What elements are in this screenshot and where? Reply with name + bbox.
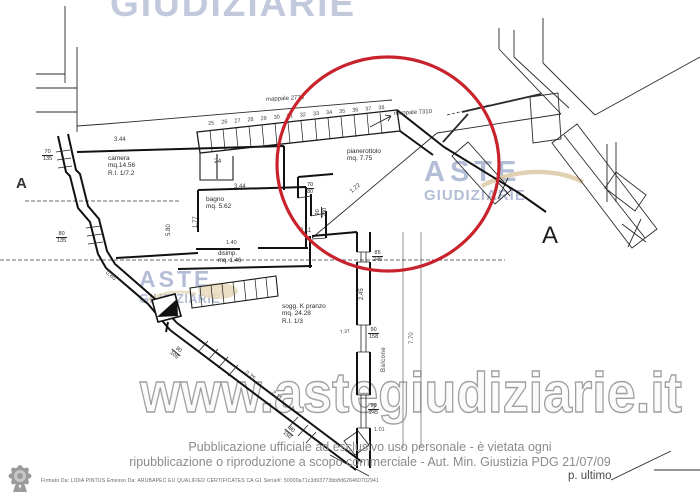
room-area: mq. 5.62 bbox=[206, 203, 231, 210]
dim-balcone-upper: 2.45 bbox=[359, 288, 365, 300]
room-name: bagno bbox=[206, 196, 231, 203]
legal-notice-line2: ripubblicazione o riproduzione a scopo c… bbox=[90, 455, 650, 470]
opening-height: 158 bbox=[368, 333, 379, 340]
room-label-pianerottolo: pianerottolo mq. 7.75 bbox=[347, 148, 381, 163]
opening-height: 245 bbox=[372, 256, 383, 263]
microtext-dashed-lines bbox=[0, 201, 505, 260]
dim-balcone-total: 7.70 bbox=[409, 332, 415, 344]
scan-stain bbox=[198, 283, 238, 299]
room-label-disimpegno: disimp. mq. 1.46 bbox=[218, 251, 241, 265]
legal-notice: Pubblicazione ufficiale ad esclusivo uso… bbox=[90, 440, 650, 470]
scanned-floorplan-page: GIUDIZIARIE ASTE GIUDIZIARIE ASTE GIUDIZ… bbox=[0, 0, 700, 495]
dim-balcone-lower: 1.01 bbox=[374, 427, 385, 433]
stair-start-number: 24 bbox=[214, 158, 221, 165]
dim-camera-width: 3.44 bbox=[114, 137, 126, 143]
seal-icon bbox=[9, 465, 32, 492]
dim-camera-height: 5.80 bbox=[166, 224, 172, 236]
opening-height: 245 bbox=[368, 409, 379, 416]
opening-height: 230 bbox=[321, 207, 328, 218]
room-area: mq. 1.46 bbox=[218, 258, 241, 265]
flue-symbol bbox=[152, 294, 181, 332]
room-label-camera: camera mq.14.56 R.I. 1/7.2 bbox=[108, 155, 135, 177]
room-label-bagno: bagno mq. 5.62 bbox=[206, 196, 231, 211]
signature-text: Firmato Da: LIDIA PINTUS Emesso Da: ARUB… bbox=[41, 478, 379, 484]
room-area: mq.14.56 bbox=[108, 162, 135, 169]
dim-bagno-height: 1.77 bbox=[193, 216, 199, 228]
window-size-80-135: 80 135 bbox=[56, 231, 67, 244]
room-area: mq. 7.75 bbox=[347, 155, 381, 162]
window-size-90-158: 90 158 bbox=[368, 327, 379, 340]
dim-bagno-width: 3.44 bbox=[234, 184, 246, 190]
window-size-90-245: 90 245 bbox=[368, 403, 379, 416]
window-size-85-245: 85 245 bbox=[372, 250, 383, 263]
window-size-70-80: 70 80 bbox=[306, 182, 314, 195]
page-label: p. ultimo bbox=[568, 470, 611, 482]
room-name: pianerottolo bbox=[347, 148, 381, 155]
legal-notice-line1: Pubblicazione ufficiale ad esclusivo uso… bbox=[90, 440, 650, 455]
room-name: sogg. K pranzo bbox=[282, 303, 326, 310]
section-letter-right: A bbox=[542, 222, 558, 250]
opening-height: 135 bbox=[56, 237, 67, 244]
room-name: disimp. bbox=[218, 251, 241, 258]
room-ratio: R.I. 1/7.2 bbox=[108, 170, 135, 177]
window-size-70-135: 70 135 bbox=[42, 149, 53, 162]
room-ratio: R.I. 1/3 bbox=[282, 318, 326, 325]
room-label-soggiorno: sogg. K pranzo mq. 24.28 R.I. 1/3 bbox=[282, 303, 326, 325]
opening-height: 135 bbox=[42, 155, 53, 162]
dim-soggiorno-width: 3.11 bbox=[300, 228, 311, 234]
mappale-arrow bbox=[447, 105, 489, 115]
room-area: mq. 24.28 bbox=[282, 310, 326, 317]
door-size-90-230: 90 230 bbox=[315, 207, 328, 218]
room-label-balcone: Balcone bbox=[381, 347, 387, 372]
room-name: camera bbox=[108, 155, 135, 162]
floorplan-linework bbox=[0, 0, 700, 495]
signature-seal bbox=[0, 0, 40, 495]
dim-disimpegno-width: 1.40 bbox=[226, 240, 237, 246]
opening-height: 80 bbox=[306, 188, 314, 195]
